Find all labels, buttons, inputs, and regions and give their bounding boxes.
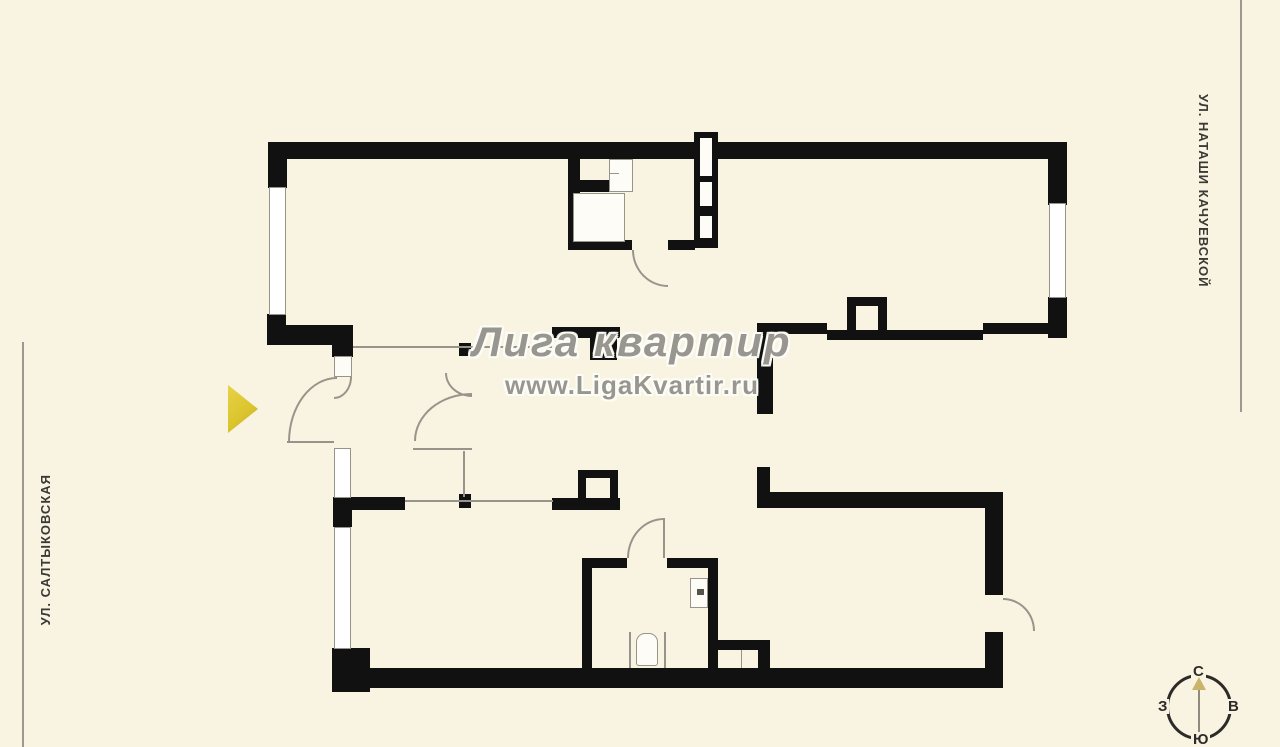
wall-segment <box>582 558 627 568</box>
door-swing-arc <box>1003 598 1035 631</box>
floor-plan-page: УЛ. САЛТЫКОВСКАЯ УЛ. НАТАШИ КАЧУЕВСКОЙ Л… <box>0 0 1280 747</box>
wall-segment <box>333 497 352 527</box>
entrance-arrow-icon <box>228 385 258 433</box>
street-label-right: УЛ. НАТАШИ КАЧУЕВСКОЙ <box>1196 94 1211 288</box>
compass-east-label: В <box>1226 699 1241 714</box>
wall-segment <box>983 323 1067 334</box>
wall-segment <box>268 142 1067 159</box>
watermark-title: Лига квартир <box>392 318 872 366</box>
thin-line <box>609 173 619 174</box>
wall-segment <box>878 297 887 334</box>
compass-south-label: Ю <box>1191 732 1210 747</box>
window-segment <box>1049 203 1066 298</box>
shaft-cell <box>700 138 712 176</box>
door-swing-arc <box>334 377 352 399</box>
window-segment <box>269 187 286 315</box>
wall-segment <box>758 640 770 672</box>
fixture-box <box>334 356 352 377</box>
fixture-box <box>609 159 633 192</box>
thin-line <box>629 632 631 668</box>
fixture-box <box>636 633 658 666</box>
thin-line <box>405 500 553 502</box>
wall-segment <box>668 240 695 250</box>
shaft-cell <box>700 216 712 238</box>
door-swing-arc <box>288 377 337 442</box>
window-segment <box>334 527 351 649</box>
thin-line <box>741 650 742 668</box>
wall-segment <box>757 492 1003 508</box>
wall-segment <box>568 180 610 192</box>
compass-needle-icon <box>1198 686 1200 734</box>
wall-segment <box>267 325 353 345</box>
wall-segment <box>1048 142 1067 205</box>
wall-segment <box>610 470 618 510</box>
wall-segment <box>582 558 592 672</box>
watermark-url: www.LigaKvartir.ru <box>392 370 872 401</box>
wall-segment <box>708 558 718 672</box>
door-swing-arc <box>627 518 664 558</box>
fixture-box <box>573 193 625 242</box>
street-label-left: УЛ. САЛТЫКОВСКАЯ <box>38 474 53 625</box>
thin-line <box>413 448 472 450</box>
wall-segment <box>578 470 586 510</box>
street-guide-line <box>22 342 24 747</box>
wall-segment <box>985 495 1003 595</box>
compass-needle-head-icon <box>1192 677 1206 690</box>
thin-line <box>463 451 465 497</box>
wall-segment <box>332 668 1003 688</box>
street-guide-line <box>1240 0 1242 412</box>
door-swing-arc <box>632 250 668 287</box>
wall-segment <box>985 632 1003 688</box>
wall-segment <box>268 142 287 188</box>
fixture-mark <box>697 589 704 595</box>
thin-line <box>664 632 666 668</box>
shaft-cell <box>700 182 712 206</box>
compass-west-label: З <box>1156 699 1169 714</box>
window-segment <box>334 448 351 498</box>
